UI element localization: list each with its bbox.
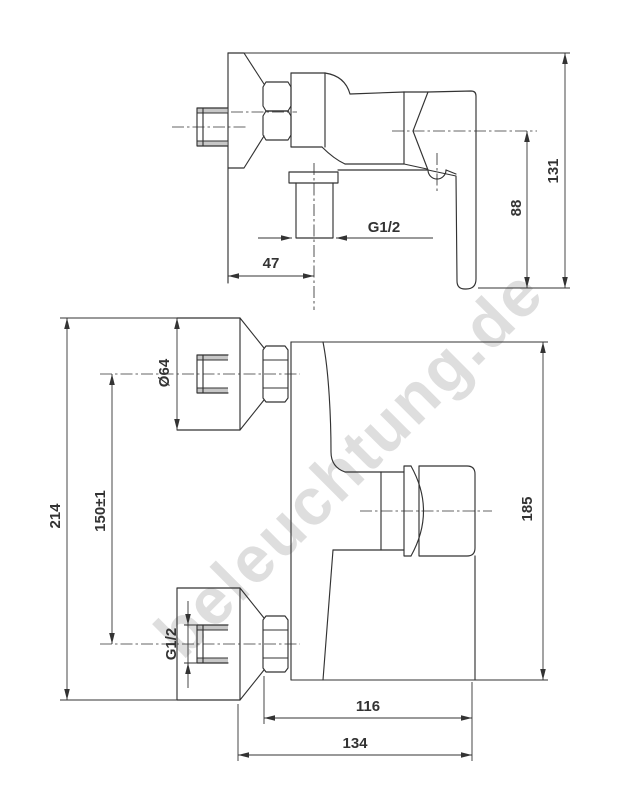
technical-drawing-page: beleuchtung.de — [0, 0, 637, 793]
side-outlet — [289, 172, 338, 238]
dim-116: 116 — [264, 676, 472, 761]
side-body — [291, 73, 456, 179]
dim-47: 47 — [228, 255, 314, 279]
dim-214: 214 — [47, 318, 70, 700]
side-handle-lever — [413, 91, 476, 289]
shower-mixer-drawing: beleuchtung.de — [0, 0, 637, 793]
dim-150-label: 150±1 — [92, 490, 109, 532]
dim-214-label: 214 — [47, 503, 64, 529]
dim-134-label: 134 — [342, 735, 368, 752]
dim-185: 185 — [519, 342, 546, 680]
dim-131: 131 — [545, 53, 568, 288]
dim-88: 88 — [392, 131, 537, 288]
side-hex-nut — [263, 82, 291, 140]
dim-dia64-label: Ø64 — [156, 358, 173, 387]
dim-185-label: 185 — [519, 496, 536, 521]
dim-47-label: 47 — [263, 255, 280, 272]
dim-150: 150±1 — [92, 374, 115, 644]
dim-dia64: Ø64 — [156, 318, 180, 430]
dim-88-label: 88 — [508, 200, 525, 217]
side-wall-flange — [228, 53, 264, 168]
dim-g12-inlet-label: G1/2 — [163, 628, 180, 661]
watermark-text: beleuchtung.de — [140, 254, 557, 671]
dim-g12-outlet-label: G1/2 — [368, 219, 401, 236]
dim-g12-outlet: G1/2 — [258, 219, 433, 241]
dim-116-label: 116 — [356, 698, 380, 715]
dim-131-label: 131 — [545, 158, 562, 183]
